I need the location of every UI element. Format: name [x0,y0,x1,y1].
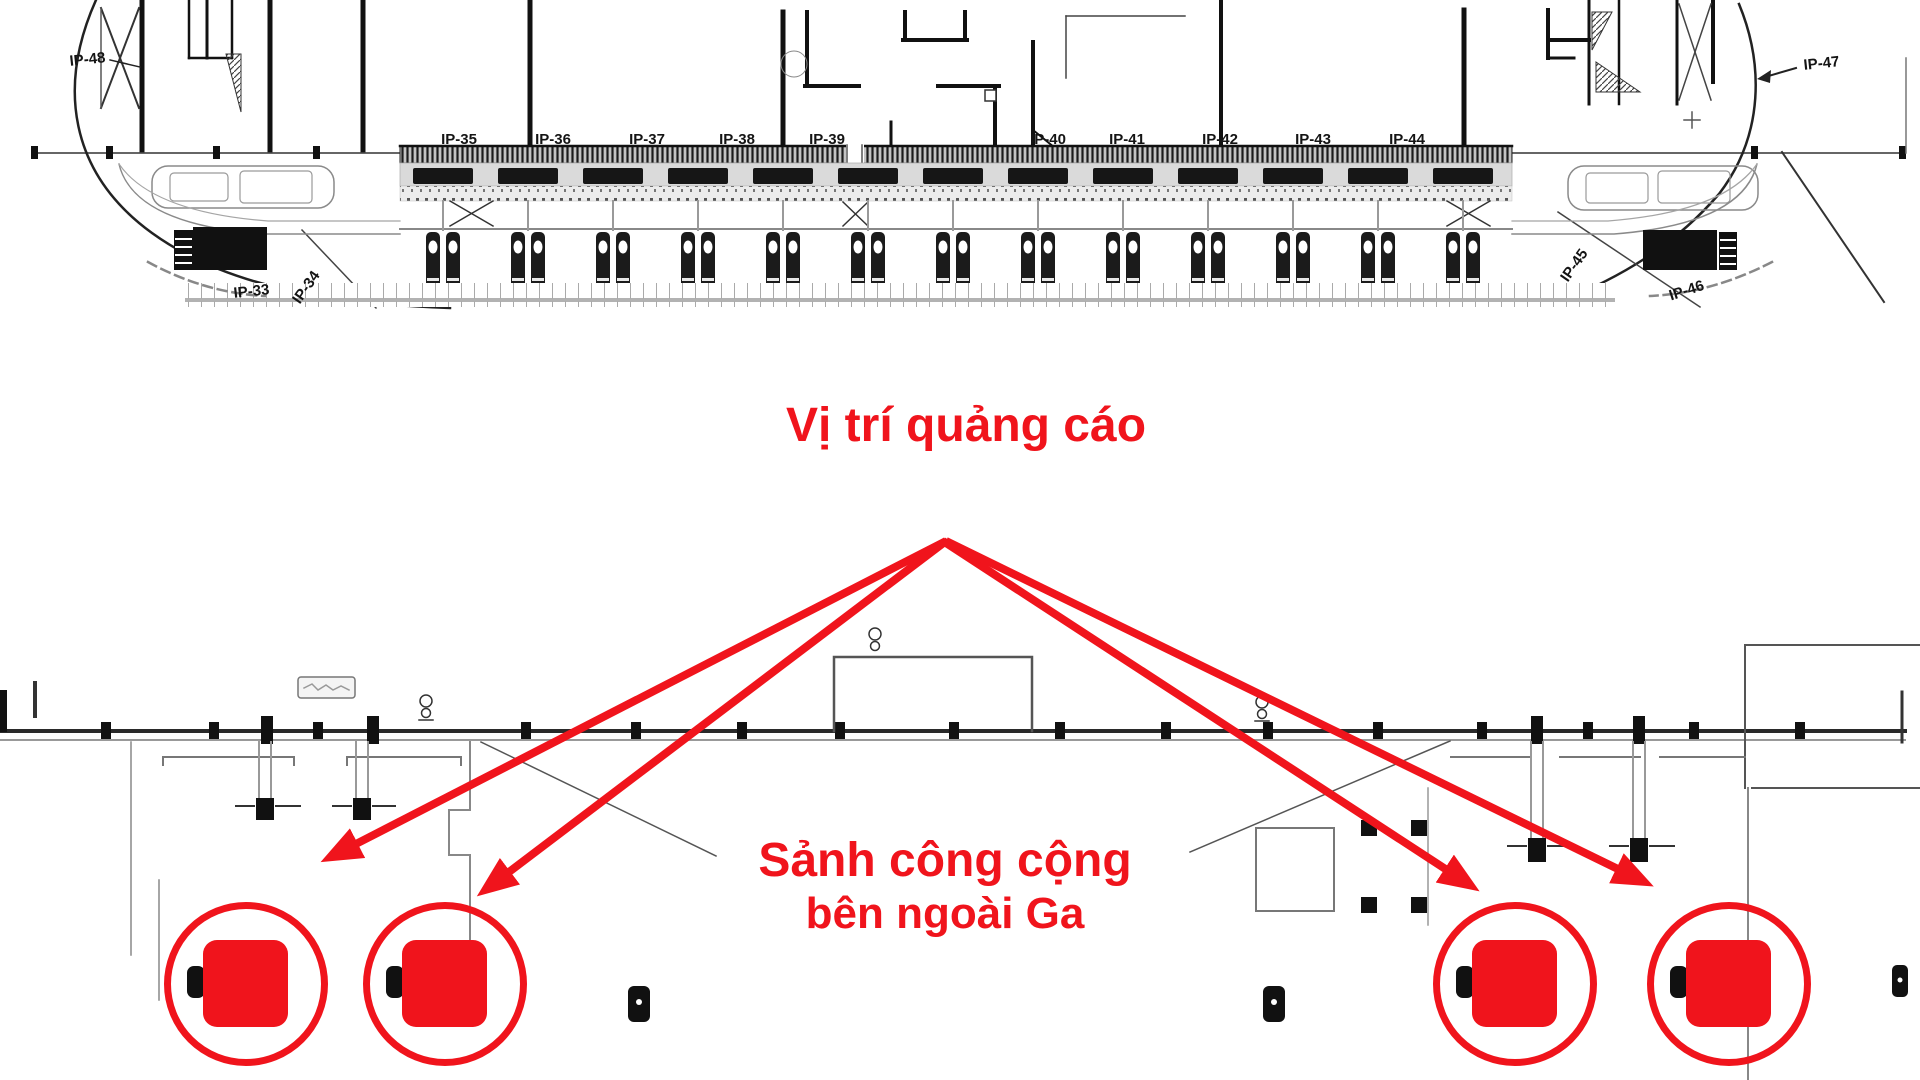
mid-right-room [1256,788,1428,925]
top-walls [783,0,1574,152]
cross-mark [1684,112,1700,128]
platform-label-ip41: IP-41 [1109,131,1145,148]
ad-marker-square [402,940,487,1027]
platform-label-ip35: IP-35 [441,131,477,148]
corner-label-ip47: IP-47 [1803,53,1840,74]
ad-marker-square [1686,940,1771,1027]
public-hall-label: Sảnh công cộng bên ngoài Ga [725,833,1165,939]
stair-hatch-triangle [226,54,241,112]
stair-hatch-triangle [1592,12,1612,50]
ad-marker-square [1472,940,1557,1027]
platform-label-ip37: IP-37 [629,131,665,148]
right-diagonal [1782,152,1884,302]
left-boundary-lines [131,742,159,1000]
ip48-leader [110,60,140,67]
left-end-walls [101,0,530,150]
ad-arrow-2 [505,541,946,875]
corner-label-ip46: IP-46 [1667,277,1706,304]
public-hall-label-line1: Sảnh công cộng [725,833,1165,889]
platform-label-ip44: IP-44 [1389,131,1426,148]
ip47-leader-arrowhead [1757,70,1771,83]
platform-edge-band [400,144,1512,229]
ad-position-label: Vị trí quảng cáo [736,400,1196,452]
corner-label-ip45: IP-45 [1557,246,1591,285]
station-plan-figure: IP-35 IP-36 IP-37 IP-38 IP-39 IP-40 IP-4… [0,0,1920,1080]
platform-label-ip42: IP-42 [1202,131,1238,148]
ad-marker-square [203,940,288,1027]
entrance-bump-outline [834,657,1032,731]
column-symbol [985,90,996,101]
ad-arrow-4 [946,541,1622,871]
ad-arrow-3 [943,541,1450,872]
platform-label-ip40: IP-40 [1030,131,1066,148]
grid-ladder-strip [185,283,1615,307]
valve-symbol [419,695,433,720]
ad-marker-3 [1433,902,1597,1066]
room-outlines [163,757,1745,765]
platform-label-ip38: IP-38 [719,131,755,148]
annotation-arrows [352,541,1622,875]
ad-marker-2 [363,902,527,1066]
x-braces [450,201,1490,226]
ad-arrow-1 [352,541,946,846]
device-symbol [869,628,881,651]
fare-gates-row [426,201,1480,292]
left-concourse [119,164,400,296]
equipment-label-box [298,677,355,698]
ad-marker-1 [164,902,328,1066]
platform-label-ip36: IP-36 [535,131,571,148]
ad-marker-4 [1647,902,1811,1066]
platform-label-ip39: IP-39 [809,131,845,148]
right-concourse [1512,164,1772,296]
upper-station-plan [31,0,1906,308]
platform-label-ip43: IP-43 [1295,131,1331,148]
public-hall-label-line2: bên ngoài Ga [725,889,1165,939]
